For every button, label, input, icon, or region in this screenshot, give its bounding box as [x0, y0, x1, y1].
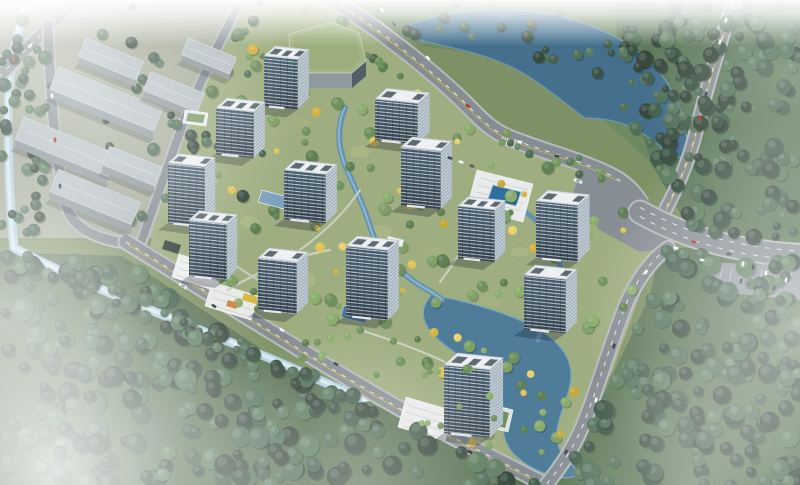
- atmosphere-layer: [0, 0, 800, 485]
- aerial-site-rendering: [0, 0, 800, 485]
- haze-overlay: [0, 0, 800, 485]
- scene-canvas: [0, 0, 800, 485]
